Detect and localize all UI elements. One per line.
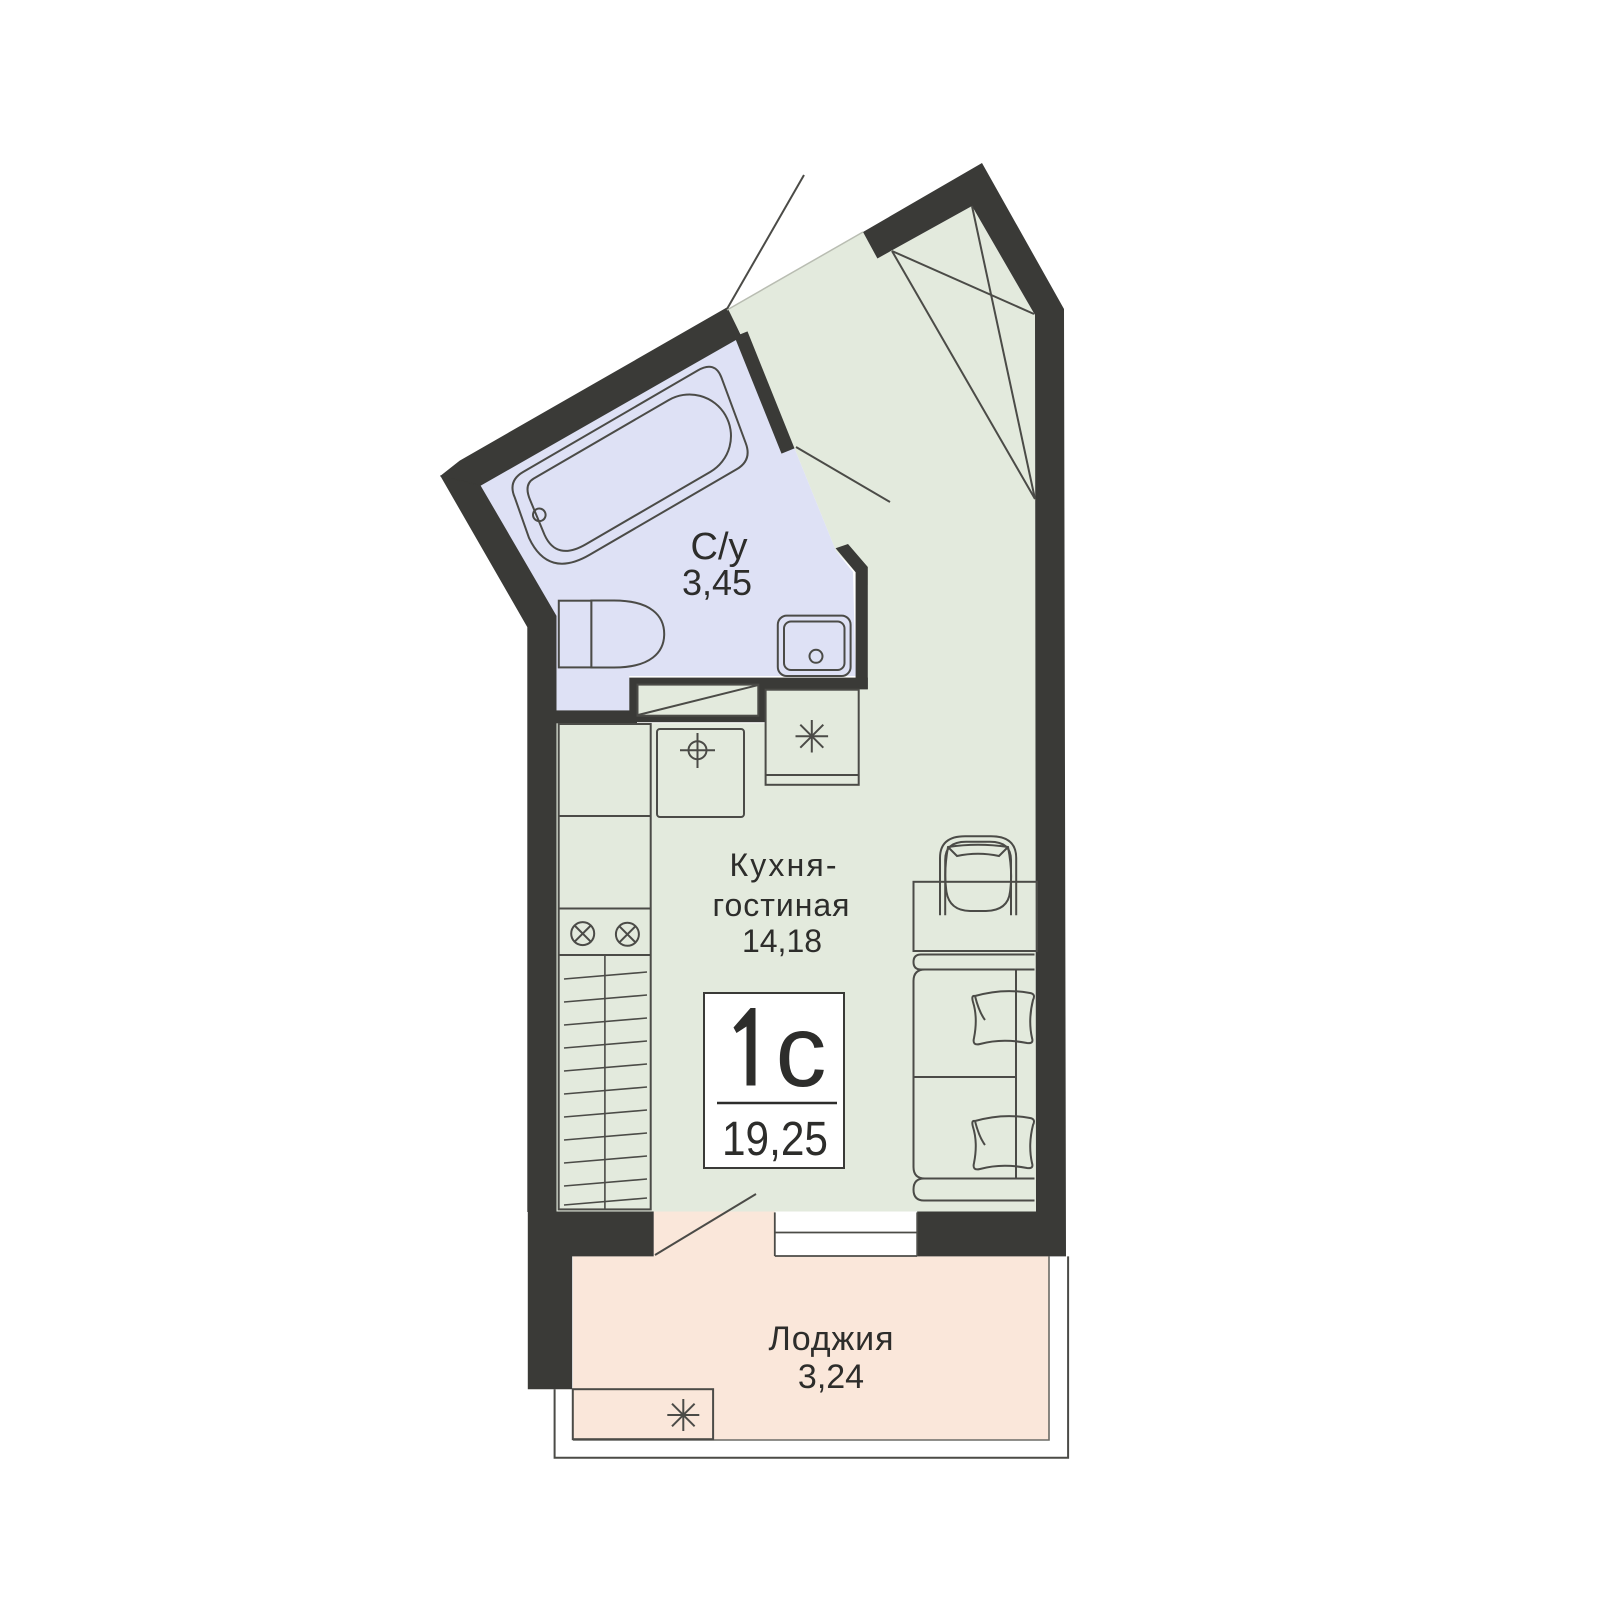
svg-text:14,18: 14,18 <box>742 923 822 959</box>
svg-text:19,25: 19,25 <box>722 1113 828 1166</box>
svg-text:3,45: 3,45 <box>682 562 752 603</box>
svg-text:Лоджия: Лоджия <box>769 1320 894 1358</box>
svg-text:с: с <box>776 994 827 1108</box>
svg-text:гостиная: гостиная <box>713 887 850 923</box>
svg-text:3,24: 3,24 <box>798 1358 864 1396</box>
svg-text:Кухня-: Кухня- <box>730 847 837 883</box>
